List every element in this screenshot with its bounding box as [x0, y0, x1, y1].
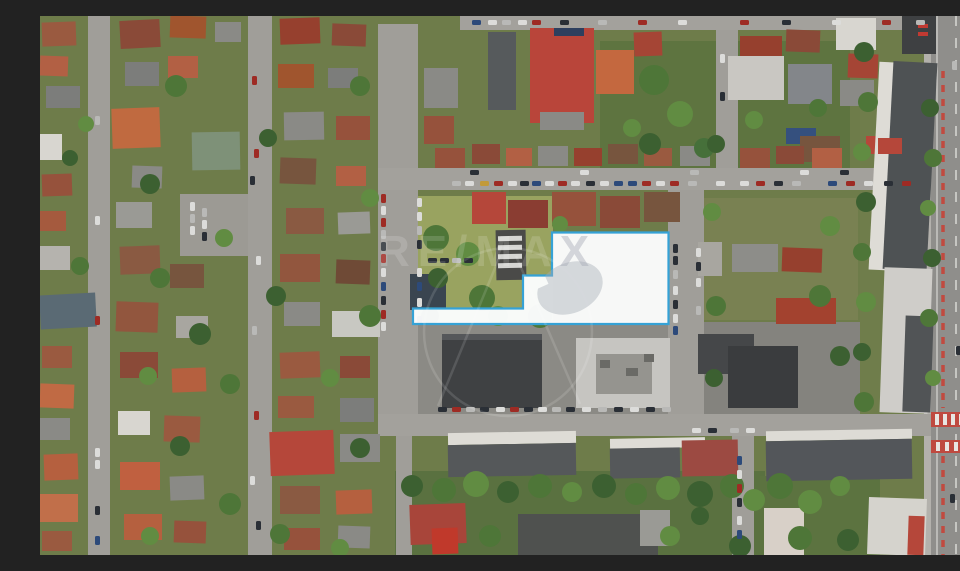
building-roof — [168, 56, 198, 78]
building-roof — [448, 443, 577, 477]
car — [673, 270, 678, 279]
road-marking — [935, 414, 939, 425]
car — [508, 181, 517, 186]
car — [846, 181, 855, 186]
building-roof — [878, 138, 902, 154]
building-roof — [424, 116, 454, 144]
building-roof — [40, 246, 70, 270]
road-marking — [945, 442, 949, 451]
car — [95, 536, 100, 545]
tree — [215, 229, 233, 247]
tree — [350, 76, 370, 96]
road-marking — [951, 414, 955, 425]
building-roof — [40, 134, 62, 160]
tree — [923, 249, 941, 267]
building-roof — [336, 489, 373, 514]
tree — [623, 119, 641, 137]
car — [598, 20, 607, 25]
building-roof — [174, 520, 207, 543]
car — [628, 181, 637, 186]
tree — [219, 493, 241, 515]
tree — [921, 99, 939, 117]
building-roof — [600, 196, 640, 228]
building-roof — [608, 144, 638, 164]
tree — [767, 473, 793, 499]
car — [95, 506, 100, 515]
aerial-photo-canvas: RE/MAXRE/MAX — [40, 16, 960, 555]
building-roof — [40, 494, 78, 522]
car — [95, 448, 100, 457]
car — [520, 181, 529, 186]
car — [916, 20, 925, 25]
car — [256, 256, 261, 265]
building-roof — [120, 462, 160, 490]
tree — [170, 436, 190, 456]
building-roof — [340, 356, 370, 378]
street — [248, 16, 272, 555]
tree — [707, 135, 725, 153]
car — [630, 407, 639, 412]
building-roof — [215, 22, 241, 42]
car — [417, 298, 422, 307]
car — [95, 460, 100, 469]
building-roof — [42, 346, 72, 368]
car — [256, 521, 261, 530]
tree — [562, 482, 582, 502]
tree — [703, 203, 721, 221]
tree — [139, 367, 157, 385]
car — [662, 407, 671, 412]
building-roof — [488, 32, 516, 110]
car — [252, 326, 257, 335]
road-marking — [936, 442, 940, 451]
tree — [687, 481, 713, 507]
tree — [667, 101, 693, 127]
car — [737, 470, 742, 479]
building-roof — [280, 157, 317, 184]
building-roof — [40, 418, 70, 440]
building-roof — [172, 367, 207, 392]
tree — [856, 292, 876, 312]
car — [884, 181, 893, 186]
building-roof — [340, 398, 374, 422]
car — [642, 181, 651, 186]
tree — [830, 346, 850, 366]
tree — [853, 143, 871, 161]
car — [638, 20, 647, 25]
building-roof — [634, 32, 663, 57]
tree — [479, 525, 501, 547]
building-roof — [280, 17, 321, 44]
building-roof — [284, 112, 324, 141]
tree — [350, 438, 370, 458]
tree — [830, 476, 850, 496]
car — [670, 181, 679, 186]
car — [792, 181, 801, 186]
car — [740, 20, 749, 25]
car — [708, 428, 717, 433]
building-roof — [424, 68, 458, 108]
car — [488, 20, 497, 25]
tree — [639, 133, 661, 155]
building-roof — [46, 86, 80, 108]
tree — [639, 65, 669, 95]
car — [832, 20, 841, 25]
car — [730, 428, 739, 433]
car — [190, 214, 195, 223]
car — [381, 218, 386, 227]
car — [254, 149, 259, 158]
car — [582, 407, 591, 412]
tree — [361, 189, 379, 207]
car — [518, 20, 527, 25]
car — [673, 256, 678, 265]
building-roof — [728, 56, 784, 100]
tree — [165, 75, 187, 97]
building-roof — [170, 16, 207, 39]
building-roof — [538, 146, 568, 166]
tree — [497, 481, 519, 503]
car — [950, 494, 955, 503]
car — [696, 306, 701, 315]
building-roof — [574, 148, 602, 166]
building-roof — [42, 531, 72, 551]
tree — [660, 526, 680, 546]
car — [720, 92, 725, 101]
building-roof — [125, 62, 159, 86]
building-roof — [788, 64, 832, 104]
car — [678, 20, 687, 25]
tree — [809, 285, 831, 307]
car — [190, 226, 195, 235]
car — [250, 176, 255, 185]
car — [502, 20, 511, 25]
building-roof — [116, 202, 152, 228]
building-roof — [336, 166, 366, 186]
tree — [625, 483, 647, 505]
car — [417, 282, 422, 291]
car — [673, 244, 678, 253]
car — [381, 310, 386, 319]
building-roof — [278, 64, 314, 88]
car — [673, 286, 678, 295]
car — [552, 407, 561, 412]
building-roof — [728, 346, 798, 408]
building-roof — [278, 396, 314, 418]
car — [417, 212, 422, 221]
tree — [71, 257, 89, 275]
tree — [853, 343, 871, 361]
car — [480, 181, 489, 186]
tree — [656, 476, 680, 500]
car — [95, 216, 100, 225]
car — [580, 170, 589, 175]
car — [840, 170, 849, 175]
car — [510, 407, 519, 412]
tree — [705, 369, 723, 387]
car — [696, 278, 701, 287]
tree — [140, 174, 160, 194]
building-roof — [682, 440, 739, 477]
building-roof — [610, 447, 681, 478]
car — [202, 208, 207, 217]
tree — [854, 42, 874, 62]
car — [746, 428, 755, 433]
building-roof — [40, 293, 97, 330]
car — [952, 61, 957, 70]
building-roof — [596, 50, 634, 94]
building-roof — [336, 259, 371, 284]
car — [598, 407, 607, 412]
building-roof — [118, 411, 150, 435]
tree — [220, 374, 240, 394]
building-roof — [269, 430, 334, 476]
car — [737, 516, 742, 525]
car — [381, 206, 386, 215]
tree — [925, 370, 941, 386]
building-roof — [280, 254, 320, 282]
car — [452, 407, 461, 412]
tree — [924, 149, 942, 167]
car — [737, 530, 742, 539]
tree — [432, 478, 456, 502]
tree — [401, 475, 423, 497]
building-roof — [472, 144, 500, 164]
building-roof — [42, 21, 77, 46]
road-marking — [954, 442, 958, 451]
building-roof — [508, 200, 548, 228]
tree — [270, 524, 290, 544]
building-roof — [44, 453, 79, 480]
building-roof — [336, 116, 370, 140]
car — [740, 181, 749, 186]
car — [882, 20, 891, 25]
car — [586, 181, 595, 186]
tree — [150, 268, 170, 288]
car — [254, 411, 259, 420]
car — [95, 116, 100, 125]
tree — [809, 99, 827, 117]
car — [571, 181, 580, 186]
tree — [920, 200, 936, 216]
building-roof — [170, 475, 205, 500]
car — [560, 20, 569, 25]
roof-detail — [918, 32, 928, 36]
tree — [743, 489, 765, 511]
building-roof — [280, 351, 321, 378]
building-roof — [40, 56, 68, 77]
tree — [259, 129, 277, 147]
car — [532, 20, 541, 25]
tree — [706, 296, 726, 316]
car — [774, 181, 783, 186]
building-roof — [554, 28, 584, 36]
tree — [853, 243, 871, 261]
roof-detail — [600, 360, 610, 368]
building-roof — [902, 316, 933, 413]
car — [381, 296, 386, 305]
tree — [858, 92, 878, 112]
car — [472, 20, 481, 25]
building-roof — [435, 148, 465, 168]
car — [202, 232, 207, 241]
tree — [798, 490, 822, 514]
car — [381, 322, 386, 331]
building-roof — [42, 173, 73, 196]
car — [673, 314, 678, 323]
tree — [141, 527, 159, 545]
building-roof — [530, 28, 594, 123]
tree — [78, 116, 94, 132]
building-roof — [472, 192, 506, 224]
building-roof — [732, 244, 778, 272]
car — [737, 484, 742, 493]
building-roof — [776, 146, 804, 164]
building-roof — [907, 516, 924, 555]
building-roof — [432, 528, 459, 555]
tree — [463, 471, 489, 497]
car — [532, 181, 541, 186]
car — [524, 407, 533, 412]
tree — [189, 323, 211, 345]
car — [250, 476, 255, 485]
roof-detail — [644, 354, 654, 362]
building-roof — [506, 148, 532, 166]
tree — [266, 286, 286, 306]
aerial-photo: RE/MAXRE/MAX Aerial drone photograph of … — [40, 16, 960, 555]
car — [494, 181, 503, 186]
building-roof — [540, 112, 584, 130]
building-roof — [518, 514, 658, 555]
building-roof — [766, 439, 913, 482]
car — [190, 202, 195, 211]
car — [864, 181, 873, 186]
car — [800, 170, 809, 175]
car — [737, 498, 742, 507]
tree — [854, 392, 874, 412]
car — [545, 181, 554, 186]
tree — [820, 216, 840, 236]
car — [614, 181, 623, 186]
car — [558, 181, 567, 186]
roof-detail — [442, 334, 542, 340]
building-roof — [40, 211, 66, 231]
car — [690, 170, 699, 175]
car — [688, 181, 697, 186]
car — [756, 181, 765, 186]
tree — [745, 111, 763, 129]
car — [673, 326, 678, 335]
car — [252, 76, 257, 85]
building-roof — [284, 302, 320, 326]
car — [95, 316, 100, 325]
building-roof — [40, 383, 74, 408]
building-roof — [812, 148, 842, 168]
tree — [321, 369, 339, 387]
car — [656, 181, 665, 186]
car — [470, 170, 479, 175]
car — [566, 407, 575, 412]
building-roof — [192, 132, 241, 171]
building-roof — [782, 247, 823, 272]
car — [828, 181, 837, 186]
building-roof — [740, 148, 770, 168]
car — [646, 407, 655, 412]
building-roof — [286, 208, 324, 234]
car — [782, 20, 791, 25]
building-roof — [338, 211, 371, 234]
car — [496, 407, 505, 412]
car — [956, 346, 960, 355]
building-roof — [115, 301, 158, 332]
car — [452, 181, 461, 186]
tree — [920, 309, 938, 327]
car — [202, 220, 207, 229]
building-roof — [280, 486, 320, 514]
car — [381, 282, 386, 291]
car — [737, 456, 742, 465]
building-roof — [644, 192, 680, 222]
street — [88, 16, 110, 555]
tree — [691, 507, 709, 525]
building-roof — [698, 242, 722, 276]
building-roof — [119, 19, 160, 49]
car — [417, 198, 422, 207]
building-roof — [170, 264, 204, 288]
roof-detail — [626, 368, 638, 376]
car — [465, 181, 474, 186]
car — [673, 300, 678, 309]
car — [720, 54, 725, 63]
car — [600, 181, 609, 186]
tree — [837, 529, 859, 551]
car — [716, 181, 725, 186]
car — [438, 407, 447, 412]
tree — [856, 192, 876, 212]
car — [696, 262, 701, 271]
tree — [592, 474, 616, 498]
car — [381, 194, 386, 203]
building-roof — [786, 29, 821, 52]
tree — [788, 526, 812, 550]
street — [378, 168, 933, 190]
tree — [528, 474, 552, 498]
tree — [62, 150, 78, 166]
car — [692, 428, 701, 433]
tree — [359, 305, 381, 327]
car — [614, 407, 623, 412]
building-roof — [448, 431, 576, 445]
car — [902, 181, 911, 186]
building-roof — [332, 23, 367, 46]
car — [696, 248, 701, 257]
building-roof — [111, 107, 160, 149]
road-marking — [943, 414, 947, 425]
building-roof — [442, 334, 542, 408]
